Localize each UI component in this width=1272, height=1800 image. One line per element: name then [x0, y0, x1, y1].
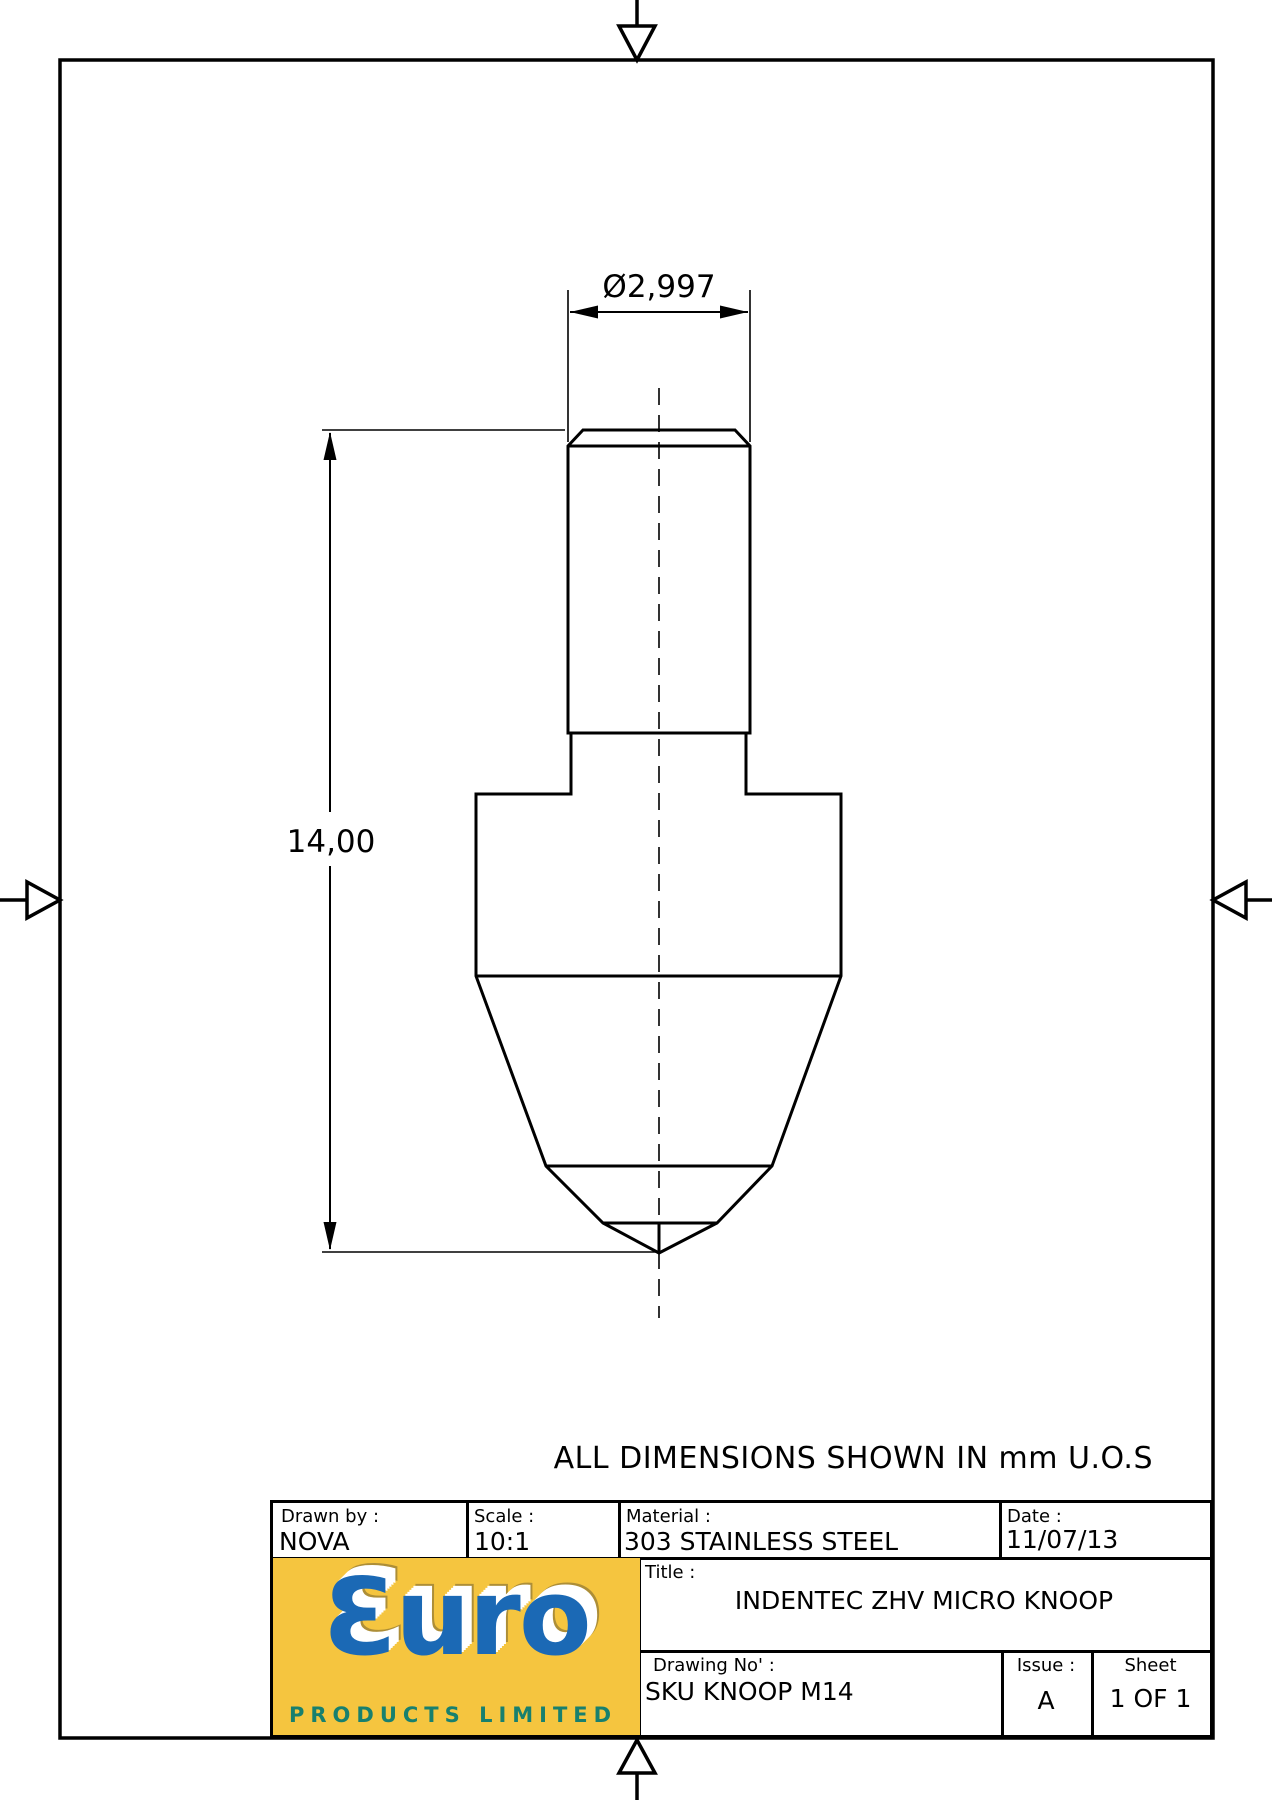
divider-scale-material [618, 1503, 621, 1560]
drawing-no-label: Drawing No' : [653, 1655, 775, 1676]
sheet-label: Sheet [1091, 1655, 1210, 1676]
arrowhead-right-icon [720, 306, 748, 319]
arrowhead-left-icon [570, 306, 598, 319]
registration-mark-right [1213, 882, 1272, 918]
arrowhead-up-icon [324, 432, 337, 460]
registration-mark-bottom [619, 1738, 655, 1800]
arrowhead-down-icon [324, 1222, 337, 1250]
issue-label: Issue : [1001, 1655, 1091, 1676]
sheet-value: 1 OF 1 [1091, 1684, 1210, 1713]
scale-label: Scale : [474, 1506, 534, 1527]
euro-products-logo: Ɛuro PRODUCTS LIMITED [273, 1558, 640, 1735]
drawn-by-label: Drawn by : [281, 1506, 379, 1527]
diameter-dimension-text: Ø2,997 [602, 269, 715, 305]
drawn-by-value: NOVA [279, 1527, 350, 1556]
registration-mark-left [0, 882, 60, 918]
issue-value: A [1001, 1686, 1091, 1715]
registration-mark-top [619, 0, 655, 60]
title-block: Drawn by : NOVA Scale : 10:1 Material : … [270, 1500, 1213, 1738]
divider-drawnby-scale [466, 1503, 469, 1560]
height-dimension-text: 14,00 [287, 824, 376, 860]
title-label: Title : [645, 1562, 695, 1583]
date-value: 11/07/13 [1006, 1525, 1118, 1554]
logo-brand-text: Ɛuro [273, 1560, 640, 1677]
scale-value: 10:1 [474, 1527, 530, 1556]
divider-title-drawingno [638, 1650, 1210, 1653]
height-dimension: 14,00 [287, 430, 656, 1252]
date-label: Date : [1007, 1506, 1062, 1527]
dimensions-note: ALL DIMENSIONS SHOWN IN mm U.O.S [554, 1441, 1153, 1476]
drawing-no-value: SKU KNOOP M14 [645, 1677, 854, 1706]
drawing-sheet: Ø2,997 14,00 ALL DIMENSIONS SHOWN IN mm … [0, 0, 1272, 1800]
divider-material-date [999, 1503, 1002, 1560]
material-value: 303 STAINLESS STEEL [624, 1527, 898, 1556]
title-value: INDENTEC ZHV MICRO KNOOP [638, 1586, 1210, 1615]
material-label: Material : [626, 1506, 711, 1527]
logo-subtext: PRODUCTS LIMITED [289, 1703, 617, 1727]
